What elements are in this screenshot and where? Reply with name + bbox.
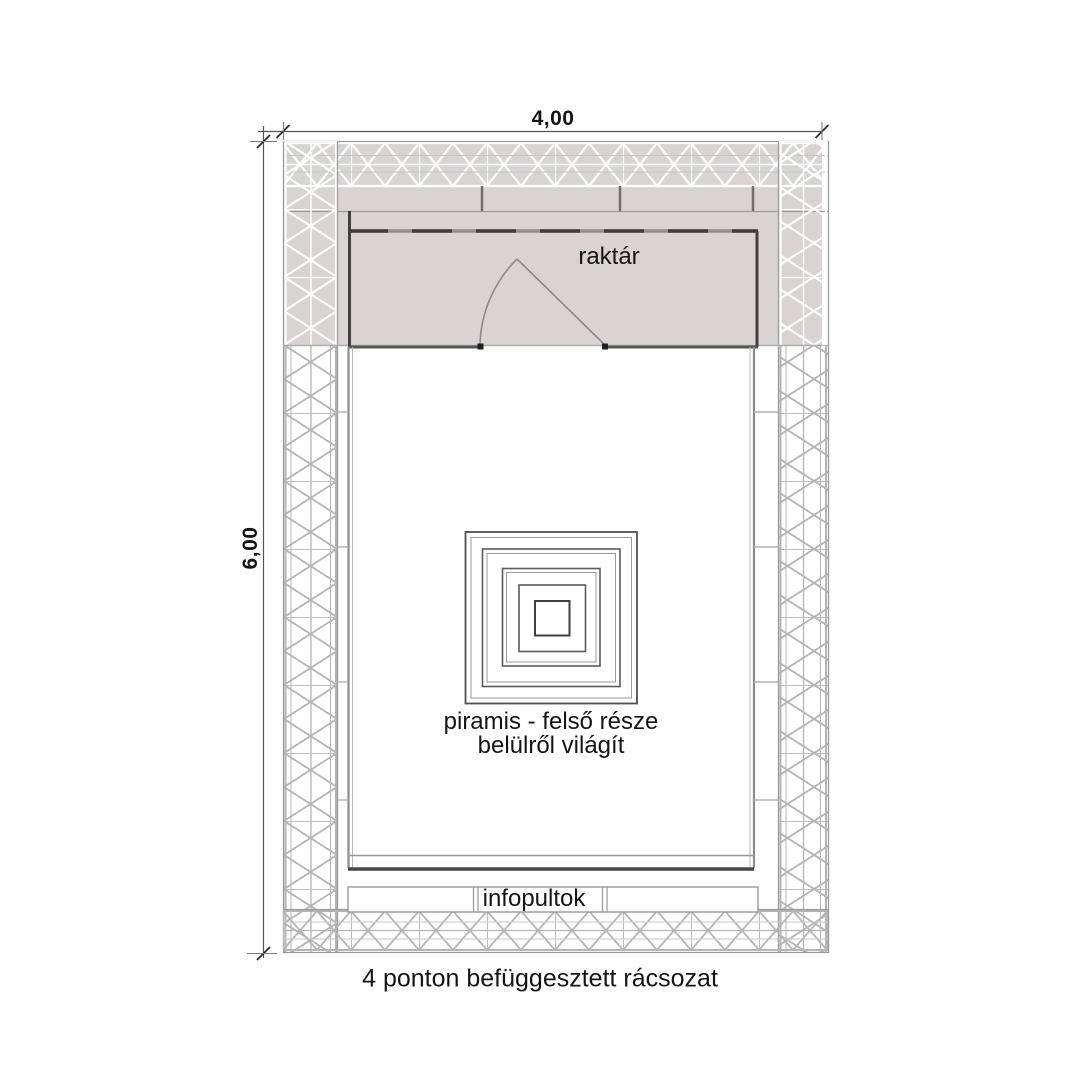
pyramid-skylight (466, 532, 638, 704)
info-desks-label: infopultok (483, 885, 586, 913)
dimension-label-width: 4,00 (532, 107, 575, 131)
inner-room (337, 347, 778, 869)
floor-plan-drawing (0, 0, 1083, 1080)
dimension-label-height: 6,00 (239, 527, 263, 570)
pyramid-label-line2: belülről világít (478, 732, 625, 760)
drawing-caption: 4 ponton befüggesztett rácsozat (362, 965, 718, 994)
storage-label: raktár (578, 243, 639, 271)
floor-plan-page: 4,00 6,00 raktár piramis - felső része b… (0, 0, 1083, 1080)
